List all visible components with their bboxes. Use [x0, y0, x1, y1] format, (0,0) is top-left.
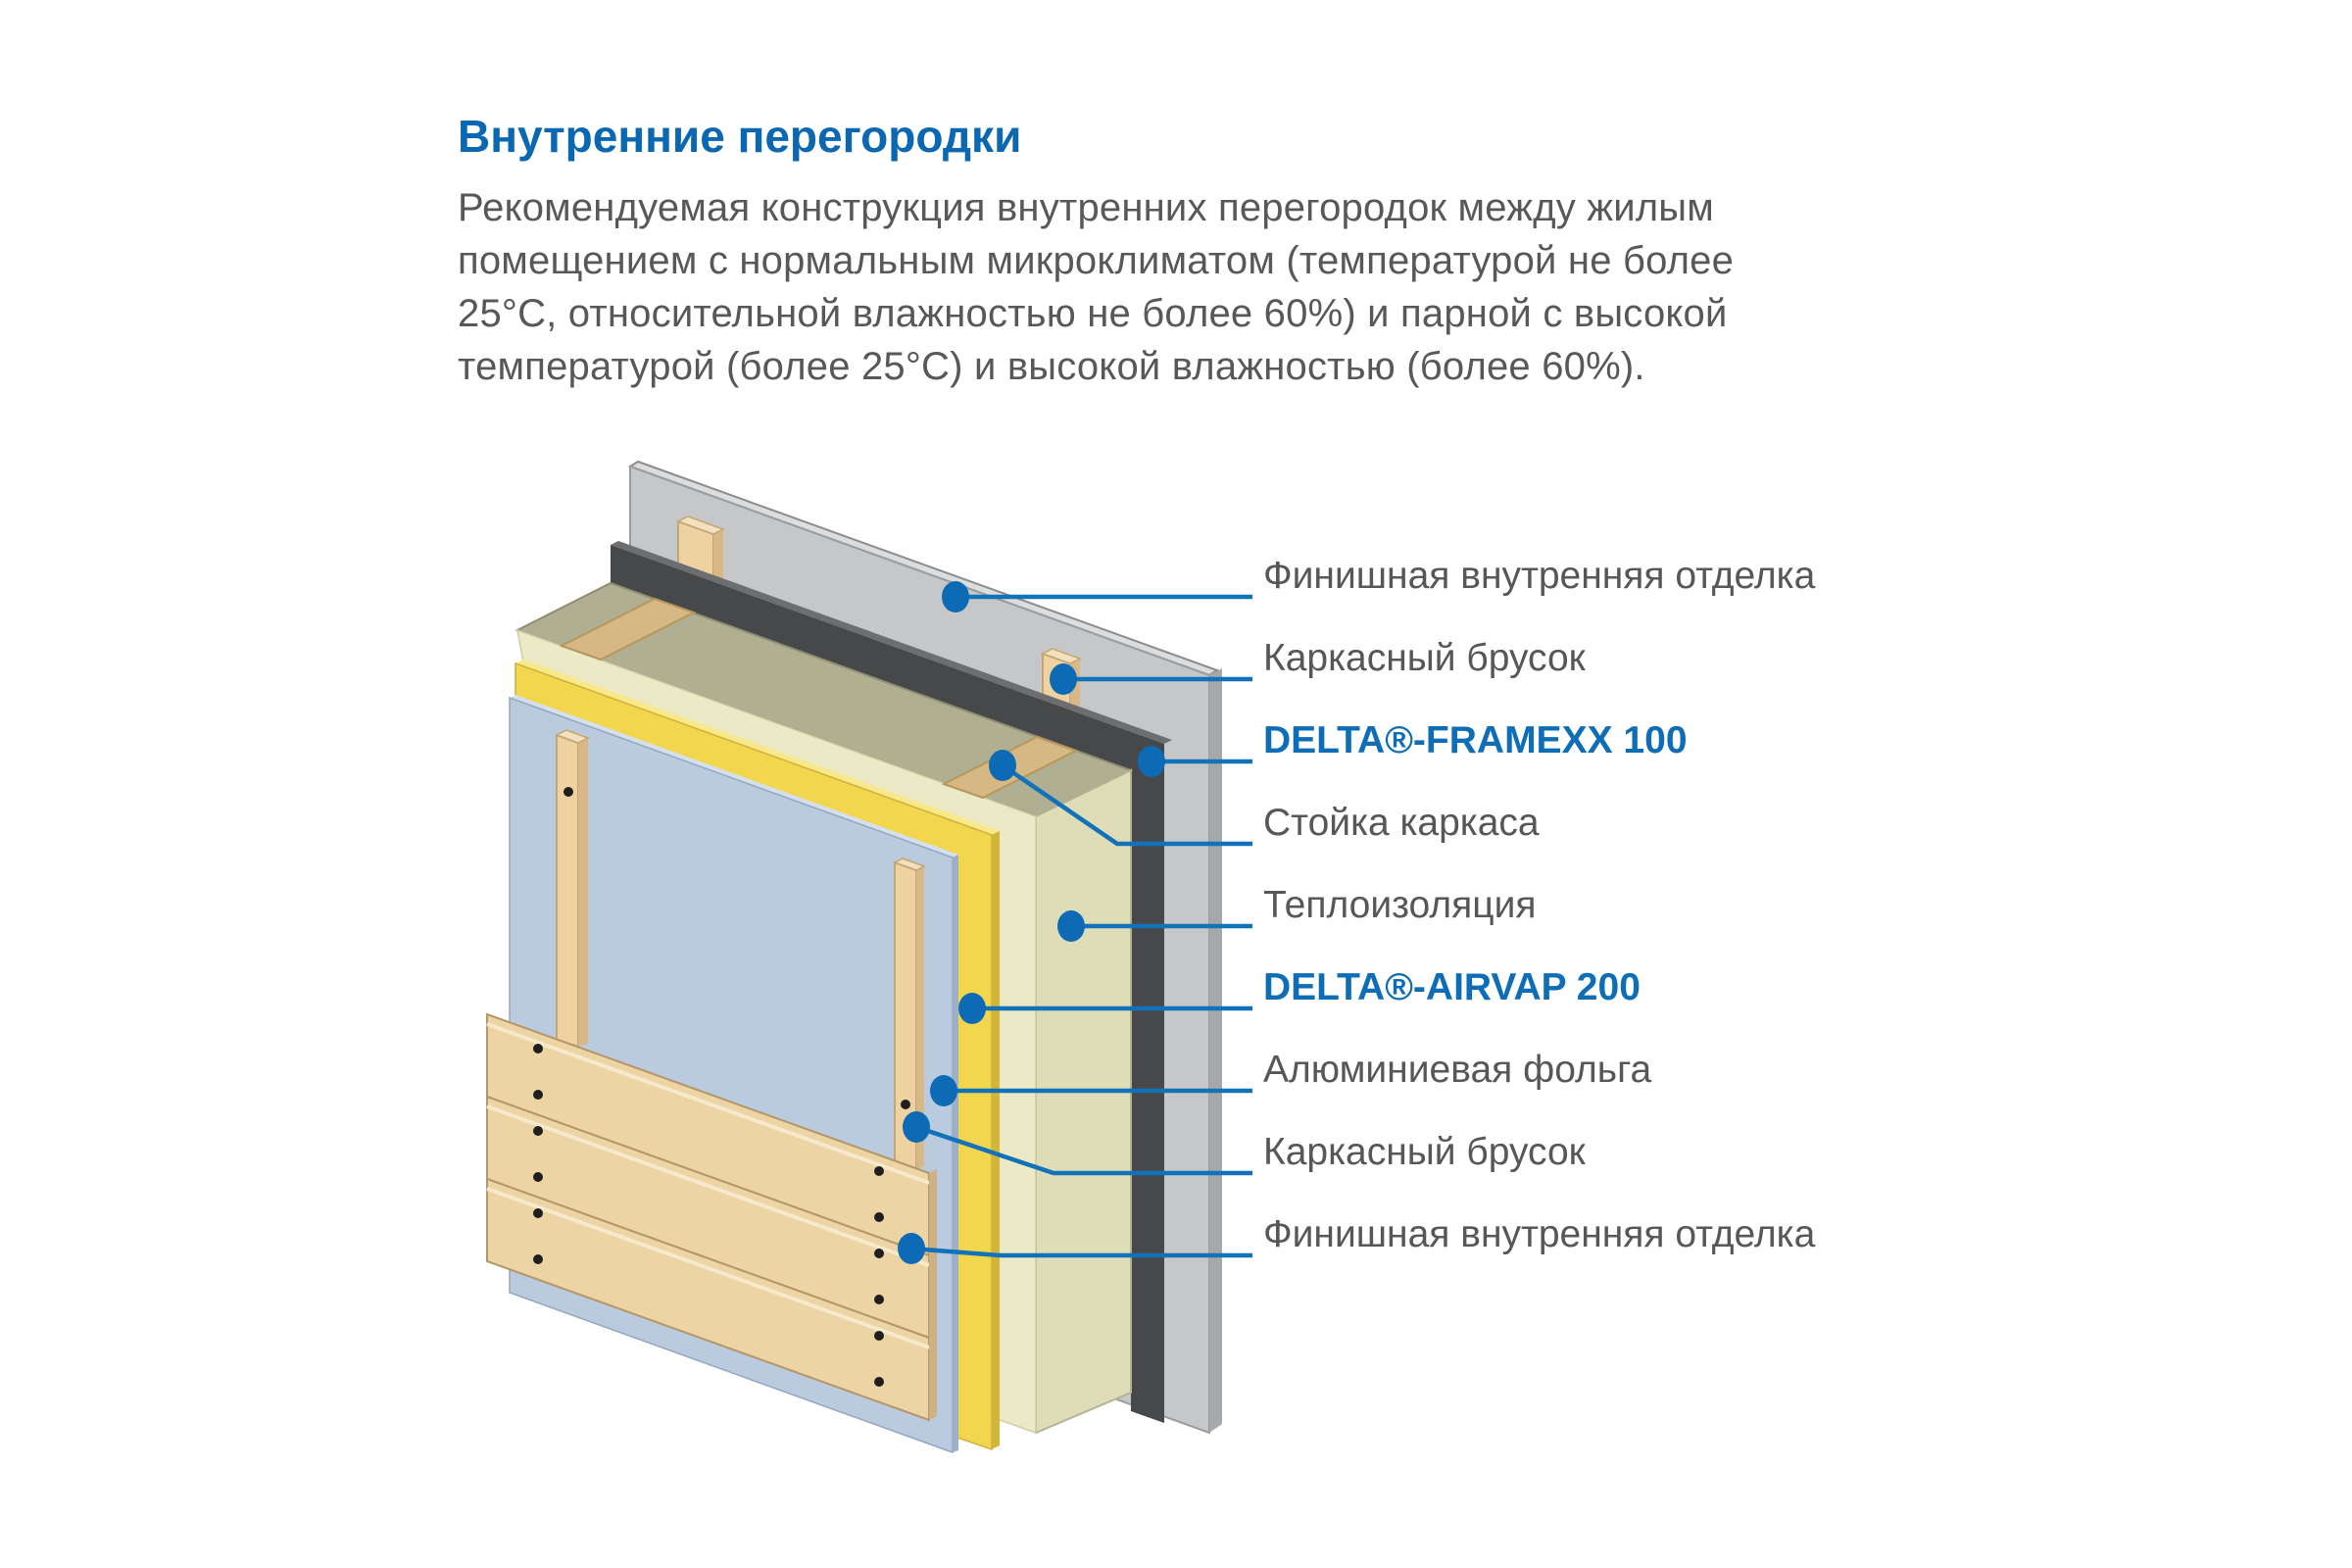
wall-assembly-diagram [0, 0, 2352, 1568]
marker-back-finish [942, 581, 969, 612]
marker-airvap [958, 993, 986, 1024]
marker-foil [930, 1075, 957, 1106]
marker-front-batten [903, 1111, 930, 1143]
marker-framexx [1138, 746, 1165, 777]
marker-front-finish [898, 1233, 925, 1264]
marker-back-batten [1050, 663, 1077, 695]
marker-stud [989, 750, 1016, 781]
marker-insulation [1057, 910, 1085, 942]
